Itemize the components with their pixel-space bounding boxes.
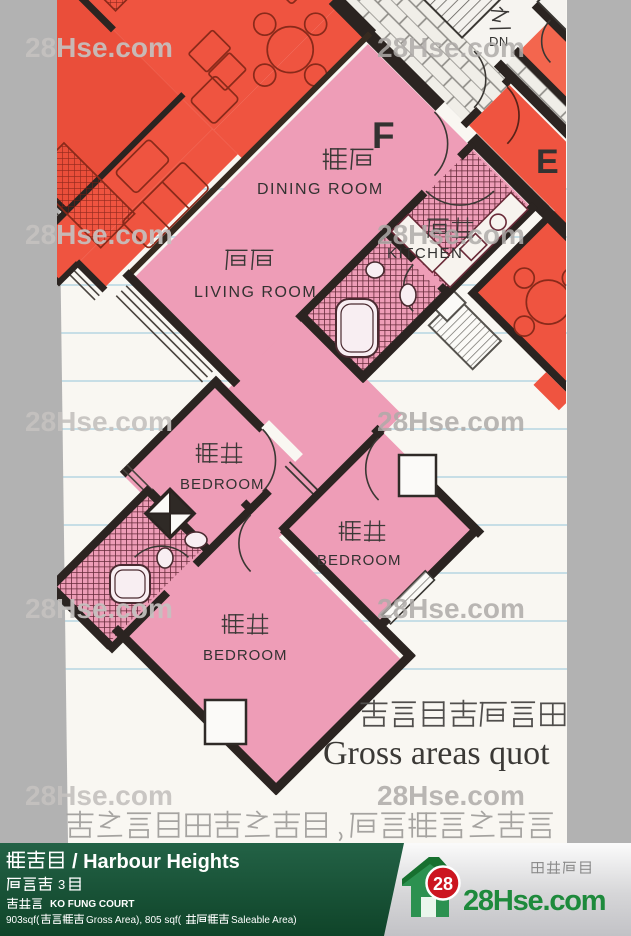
svg-text:28: 28 <box>433 874 453 894</box>
svg-text:28Hse.com: 28Hse.com <box>463 885 605 917</box>
svg-text:Saleable Area): Saleable Area) <box>231 915 297 926</box>
svg-text:3: 3 <box>58 877 65 892</box>
svg-text:903sqf(: 903sqf( <box>6 915 40 926</box>
svg-text:Gross Area), 805 sqf(: Gross Area), 805 sqf( <box>86 915 182 926</box>
svg-text:/ Harbour Heights: / Harbour Heights <box>72 851 240 873</box>
svg-text:KO FUNG COURT: KO FUNG COURT <box>50 899 134 910</box>
